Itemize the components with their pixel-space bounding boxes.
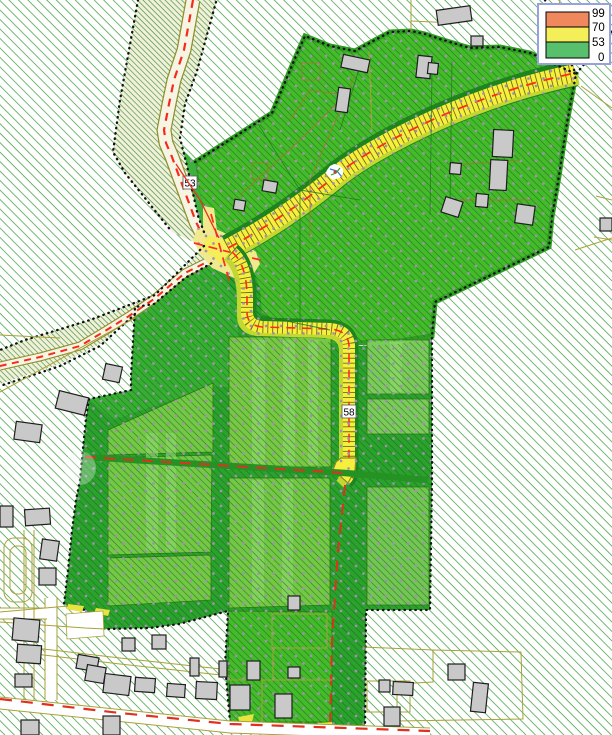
svg-text:58: 58 <box>344 408 356 419</box>
svg-text:0: 0 <box>598 52 604 64</box>
svg-text:70: 70 <box>592 22 605 34</box>
svg-text:99: 99 <box>592 8 605 20</box>
svg-text:53: 53 <box>592 37 605 49</box>
